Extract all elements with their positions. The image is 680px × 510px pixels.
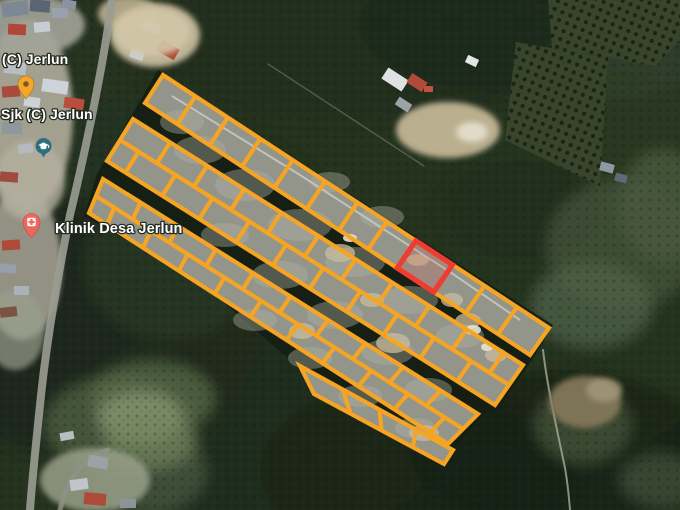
- house-roof: [0, 263, 16, 273]
- house-roof: [0, 306, 17, 318]
- house-roof: [8, 24, 27, 36]
- house-roof: [0, 171, 18, 182]
- house-roof: [2, 239, 21, 250]
- map-canvas[interactable]: (C) Jerlun Sjk (C) Jerlun Klinik Desa Je…: [0, 0, 680, 510]
- house-roof: [18, 143, 34, 154]
- house-roof: [2, 85, 21, 97]
- map-label-jerlun[interactable]: (C) Jerlun: [2, 51, 68, 67]
- house-roof: [14, 286, 29, 295]
- house-roof: [2, 122, 22, 134]
- house-roof: [424, 86, 433, 92]
- house-roof: [84, 492, 107, 506]
- satellite-map: (C) Jerlun Sjk (C) Jerlun Klinik Desa Je…: [0, 0, 680, 510]
- house-roof: [120, 499, 136, 508]
- map-label-sjk[interactable]: Sjk (C) Jerlun: [1, 106, 93, 122]
- pin-center-dot: [23, 81, 29, 87]
- clinic-cross-icon: [27, 218, 35, 226]
- house-roof: [30, 0, 51, 13]
- house-roof: [34, 21, 51, 32]
- map-label-klinik[interactable]: Klinik Desa Jerlun: [55, 221, 183, 237]
- house-roof: [52, 8, 68, 18]
